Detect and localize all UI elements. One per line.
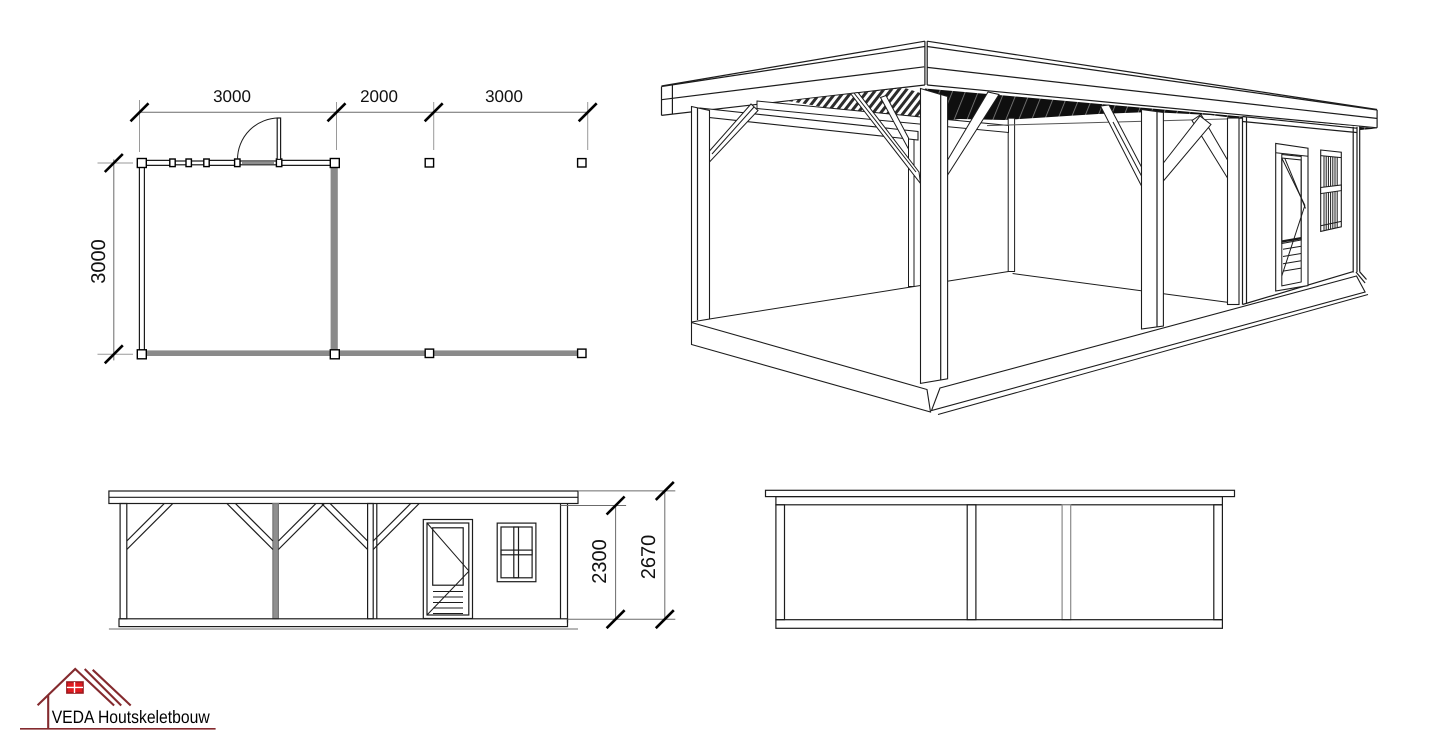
svg-text:2000: 2000 — [360, 87, 398, 106]
svg-text:3000: 3000 — [213, 87, 251, 106]
svg-text:2300: 2300 — [589, 539, 611, 584]
svg-text:2670: 2670 — [638, 535, 660, 580]
svg-text:3000: 3000 — [88, 239, 110, 284]
svg-text:VEDA Houtskeletbouw: VEDA Houtskeletbouw — [52, 707, 211, 727]
svg-text:3000: 3000 — [485, 87, 523, 106]
